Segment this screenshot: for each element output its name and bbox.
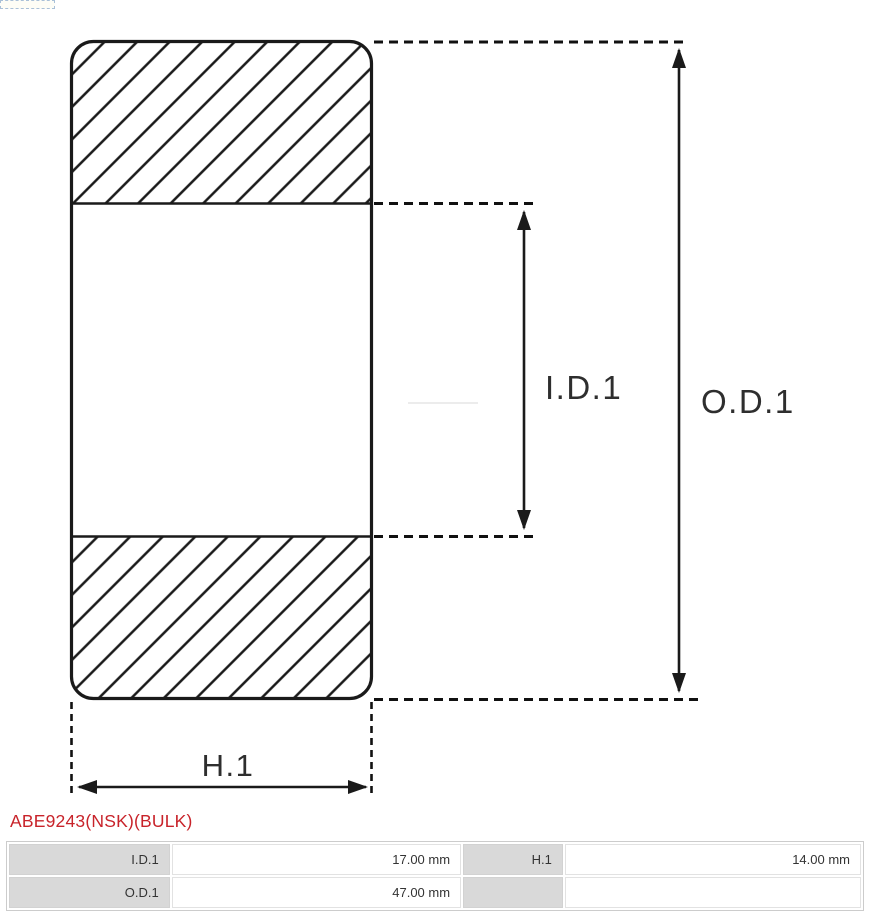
id-dimension-label: I.D.1: [545, 369, 622, 406]
bearing-diagram: I.D.1 O.D.1 H.1: [0, 0, 871, 806]
spec-table: I.D.1 17.00 mm H.1 14.00 mm O.D.1 47.00 …: [6, 841, 864, 911]
bearing-cross-section-svg: I.D.1 O.D.1 H.1: [0, 0, 871, 806]
spec-value-h: 14.00 mm: [565, 844, 861, 875]
hatch-bands: [70, 40, 374, 701]
spec-value-od: 47.00 mm: [172, 877, 461, 908]
spec-value-id: 17.00 mm: [172, 844, 461, 875]
page: I.D.1 O.D.1 H.1 ABE9243(NSK)(BULK) I.D.1…: [0, 0, 871, 913]
spec-row: I.D.1 17.00 mm H.1 14.00 mm: [9, 844, 861, 875]
od-dimension-label: O.D.1: [701, 383, 795, 420]
spec-row: O.D.1 47.00 mm: [9, 877, 861, 908]
h-dimension-label: H.1: [202, 748, 255, 783]
spec-label-od: O.D.1: [9, 877, 170, 908]
part-number-heading: ABE9243(NSK)(BULK): [10, 811, 193, 832]
extension-lines: [374, 42, 702, 700]
bottom-race-hatch: [70, 536, 374, 701]
spec-label-empty: [463, 877, 563, 908]
spec-label-id: I.D.1: [9, 844, 170, 875]
top-race-hatch: [70, 40, 374, 204]
spec-value-empty: [565, 877, 861, 908]
spec-label-h: H.1: [463, 844, 563, 875]
